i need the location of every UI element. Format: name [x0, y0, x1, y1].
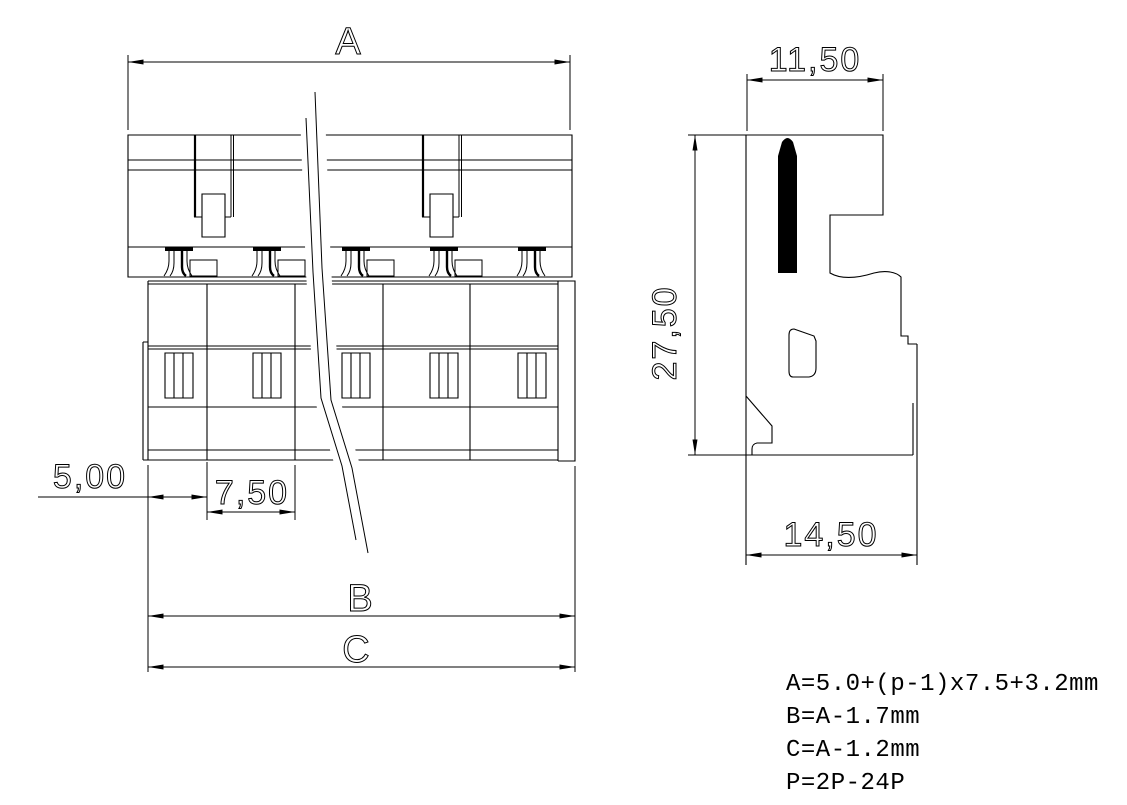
dimension-b-label: B	[347, 578, 374, 620]
drawing-canvas: A B C 5,00 7,50 11,50 27,50 14,50	[0, 0, 1127, 805]
dimension-5-label: 5,00	[53, 458, 127, 496]
formula-line-b: B=A-1.7mm	[786, 704, 920, 731]
dimension-a-extension-lines	[128, 55, 570, 130]
front-view	[128, 86, 575, 560]
dimension-27-label: 27,50	[646, 285, 684, 380]
contact-pin	[778, 138, 797, 273]
dimension-11-50: 11,50	[747, 41, 883, 131]
dimension-5-00: 5,00	[38, 458, 207, 520]
side-body-outline	[688, 135, 917, 565]
dimension-7-label: 7,50	[215, 474, 289, 512]
dimension-11-label: 11,50	[769, 41, 862, 79]
dimension-14-label: 14,50	[783, 516, 878, 554]
break-gap-mask	[299, 86, 377, 560]
dimension-a-label: A	[335, 21, 362, 63]
dimension-7-50: 7,50	[207, 465, 295, 520]
dimension-c-label: C	[342, 629, 371, 671]
contact-feet-legs	[164, 251, 545, 276]
side-cavity-hole	[789, 329, 816, 377]
dimension-11-extension-lines	[747, 74, 883, 131]
formula-notes: A=5.0+(p-1)x7.5+3.2mm B=A-1.7mm C=A-1.2m…	[786, 671, 1099, 797]
contact-feet-thick-legs	[182, 251, 539, 276]
formula-line-c: C=A-1.2mm	[786, 737, 920, 764]
dimension-a: A	[128, 21, 570, 130]
technical-drawing-page: A B C 5,00 7,50 11,50 27,50 14,50	[0, 0, 1127, 805]
dimension-14-50: 14,50	[746, 516, 917, 555]
formula-line-p: P=2P-24P	[786, 770, 905, 797]
dimension-27-50: 27,50	[646, 135, 695, 455]
front-lower-body-grid	[143, 281, 575, 461]
terminal-windows	[165, 353, 546, 398]
dimension-c: C	[148, 629, 575, 671]
side-view	[688, 135, 917, 565]
contact-feet-top-bars	[165, 247, 546, 251]
formula-line-a: A=5.0+(p-1)x7.5+3.2mm	[786, 671, 1099, 698]
